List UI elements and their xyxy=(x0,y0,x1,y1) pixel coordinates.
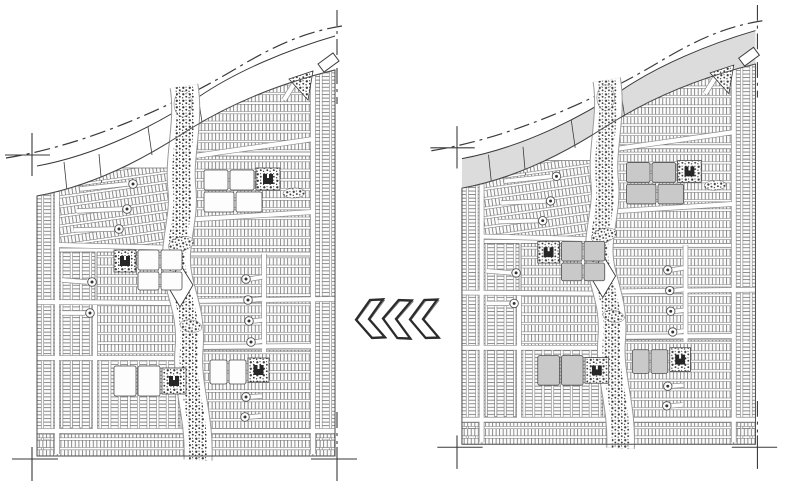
civic-blocks xyxy=(632,348,690,374)
chevron-left-icon xyxy=(382,300,413,340)
transform-chevrons-icon xyxy=(355,299,440,340)
comparison-figure xyxy=(0,0,800,500)
civic-blocks xyxy=(538,356,609,386)
civic-blocks xyxy=(114,366,186,396)
right-plan-drawing xyxy=(430,5,777,469)
left-plan xyxy=(5,10,357,481)
civic-blocks xyxy=(210,358,269,384)
chevron-left-icon xyxy=(355,299,386,340)
chevron-left-icon xyxy=(409,299,440,339)
left-plan-drawing xyxy=(5,10,357,481)
right-plan xyxy=(430,5,777,469)
figure-canvas xyxy=(0,0,800,500)
